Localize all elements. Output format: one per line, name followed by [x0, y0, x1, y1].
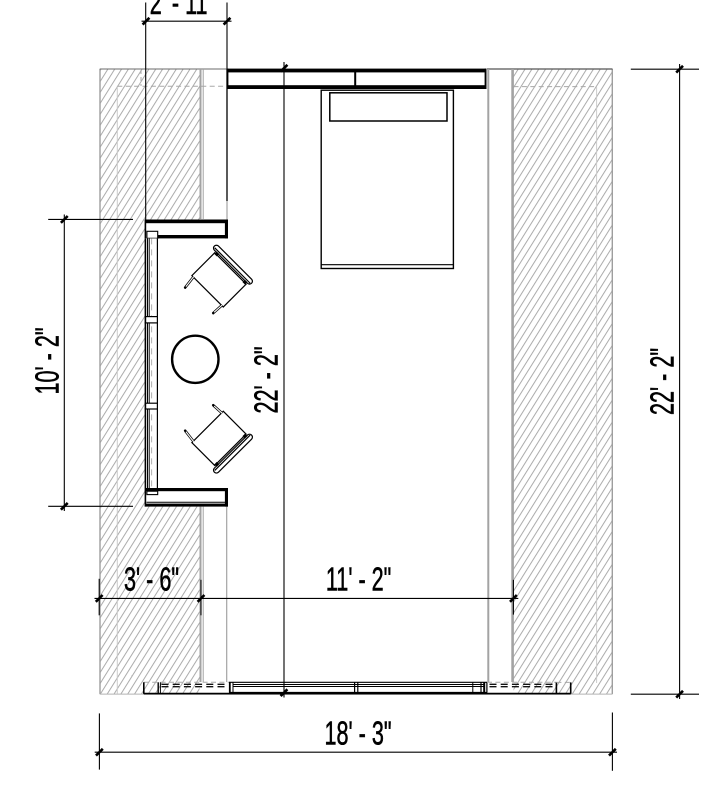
svg-text:3' - 6": 3' - 6": [124, 560, 179, 598]
svg-text:2' - 11": 2' - 11": [150, 0, 215, 21]
svg-text:10' - 2": 10' - 2": [28, 327, 66, 394]
svg-text:22' - 2": 22' - 2": [247, 346, 285, 413]
svg-text:18' - 3": 18' - 3": [324, 713, 391, 751]
svg-text:11' - 2": 11' - 2": [326, 560, 391, 598]
svg-text:22' - 2": 22' - 2": [643, 348, 681, 415]
